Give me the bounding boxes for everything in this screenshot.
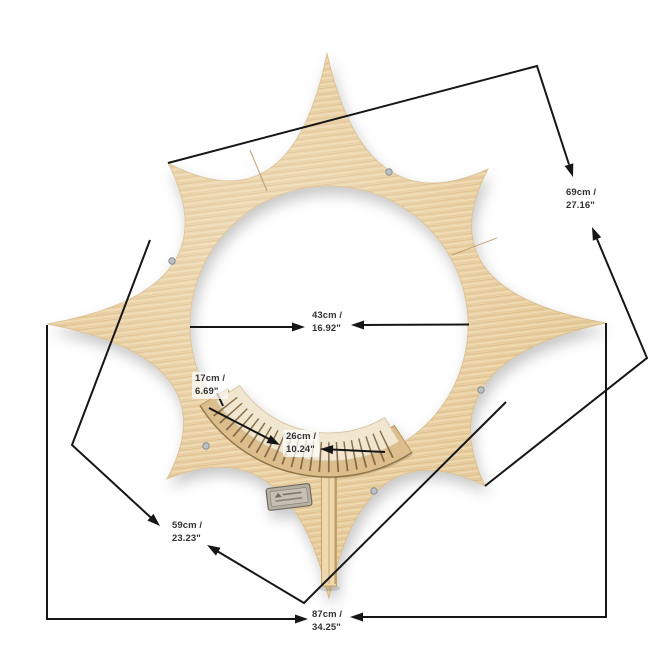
dimension-label-opening-diameter: 43cm / 16.92" <box>312 310 342 335</box>
dim-height-arrow-top <box>565 163 574 177</box>
dimension-label-rack-depth: 17cm / 6.69" <box>192 372 228 399</box>
dim-height-arrow-bottom <box>592 227 601 241</box>
dim-width-arrow-left <box>295 615 308 624</box>
dim-diameter-arrow-left <box>292 323 305 332</box>
brand-plaque <box>266 483 312 510</box>
dimension-label-rack-width: 26cm / 10.24" <box>283 430 319 457</box>
support-leg <box>318 468 340 592</box>
dimension-label-height: 69cm / 27.16" <box>566 187 596 212</box>
dimension-label-width: 87cm / 34.25" <box>312 609 342 634</box>
dim-side-arrow-lower <box>207 545 221 556</box>
product-dimension-diagram: 69cm / 27.16" 43cm / 16.92" 17cm / 6.69"… <box>0 0 653 653</box>
dim-width-arrow-right <box>350 613 363 622</box>
dimension-label-side: 59cm / 23.23" <box>172 520 202 545</box>
dim-diameter-arrow-right <box>351 321 364 330</box>
